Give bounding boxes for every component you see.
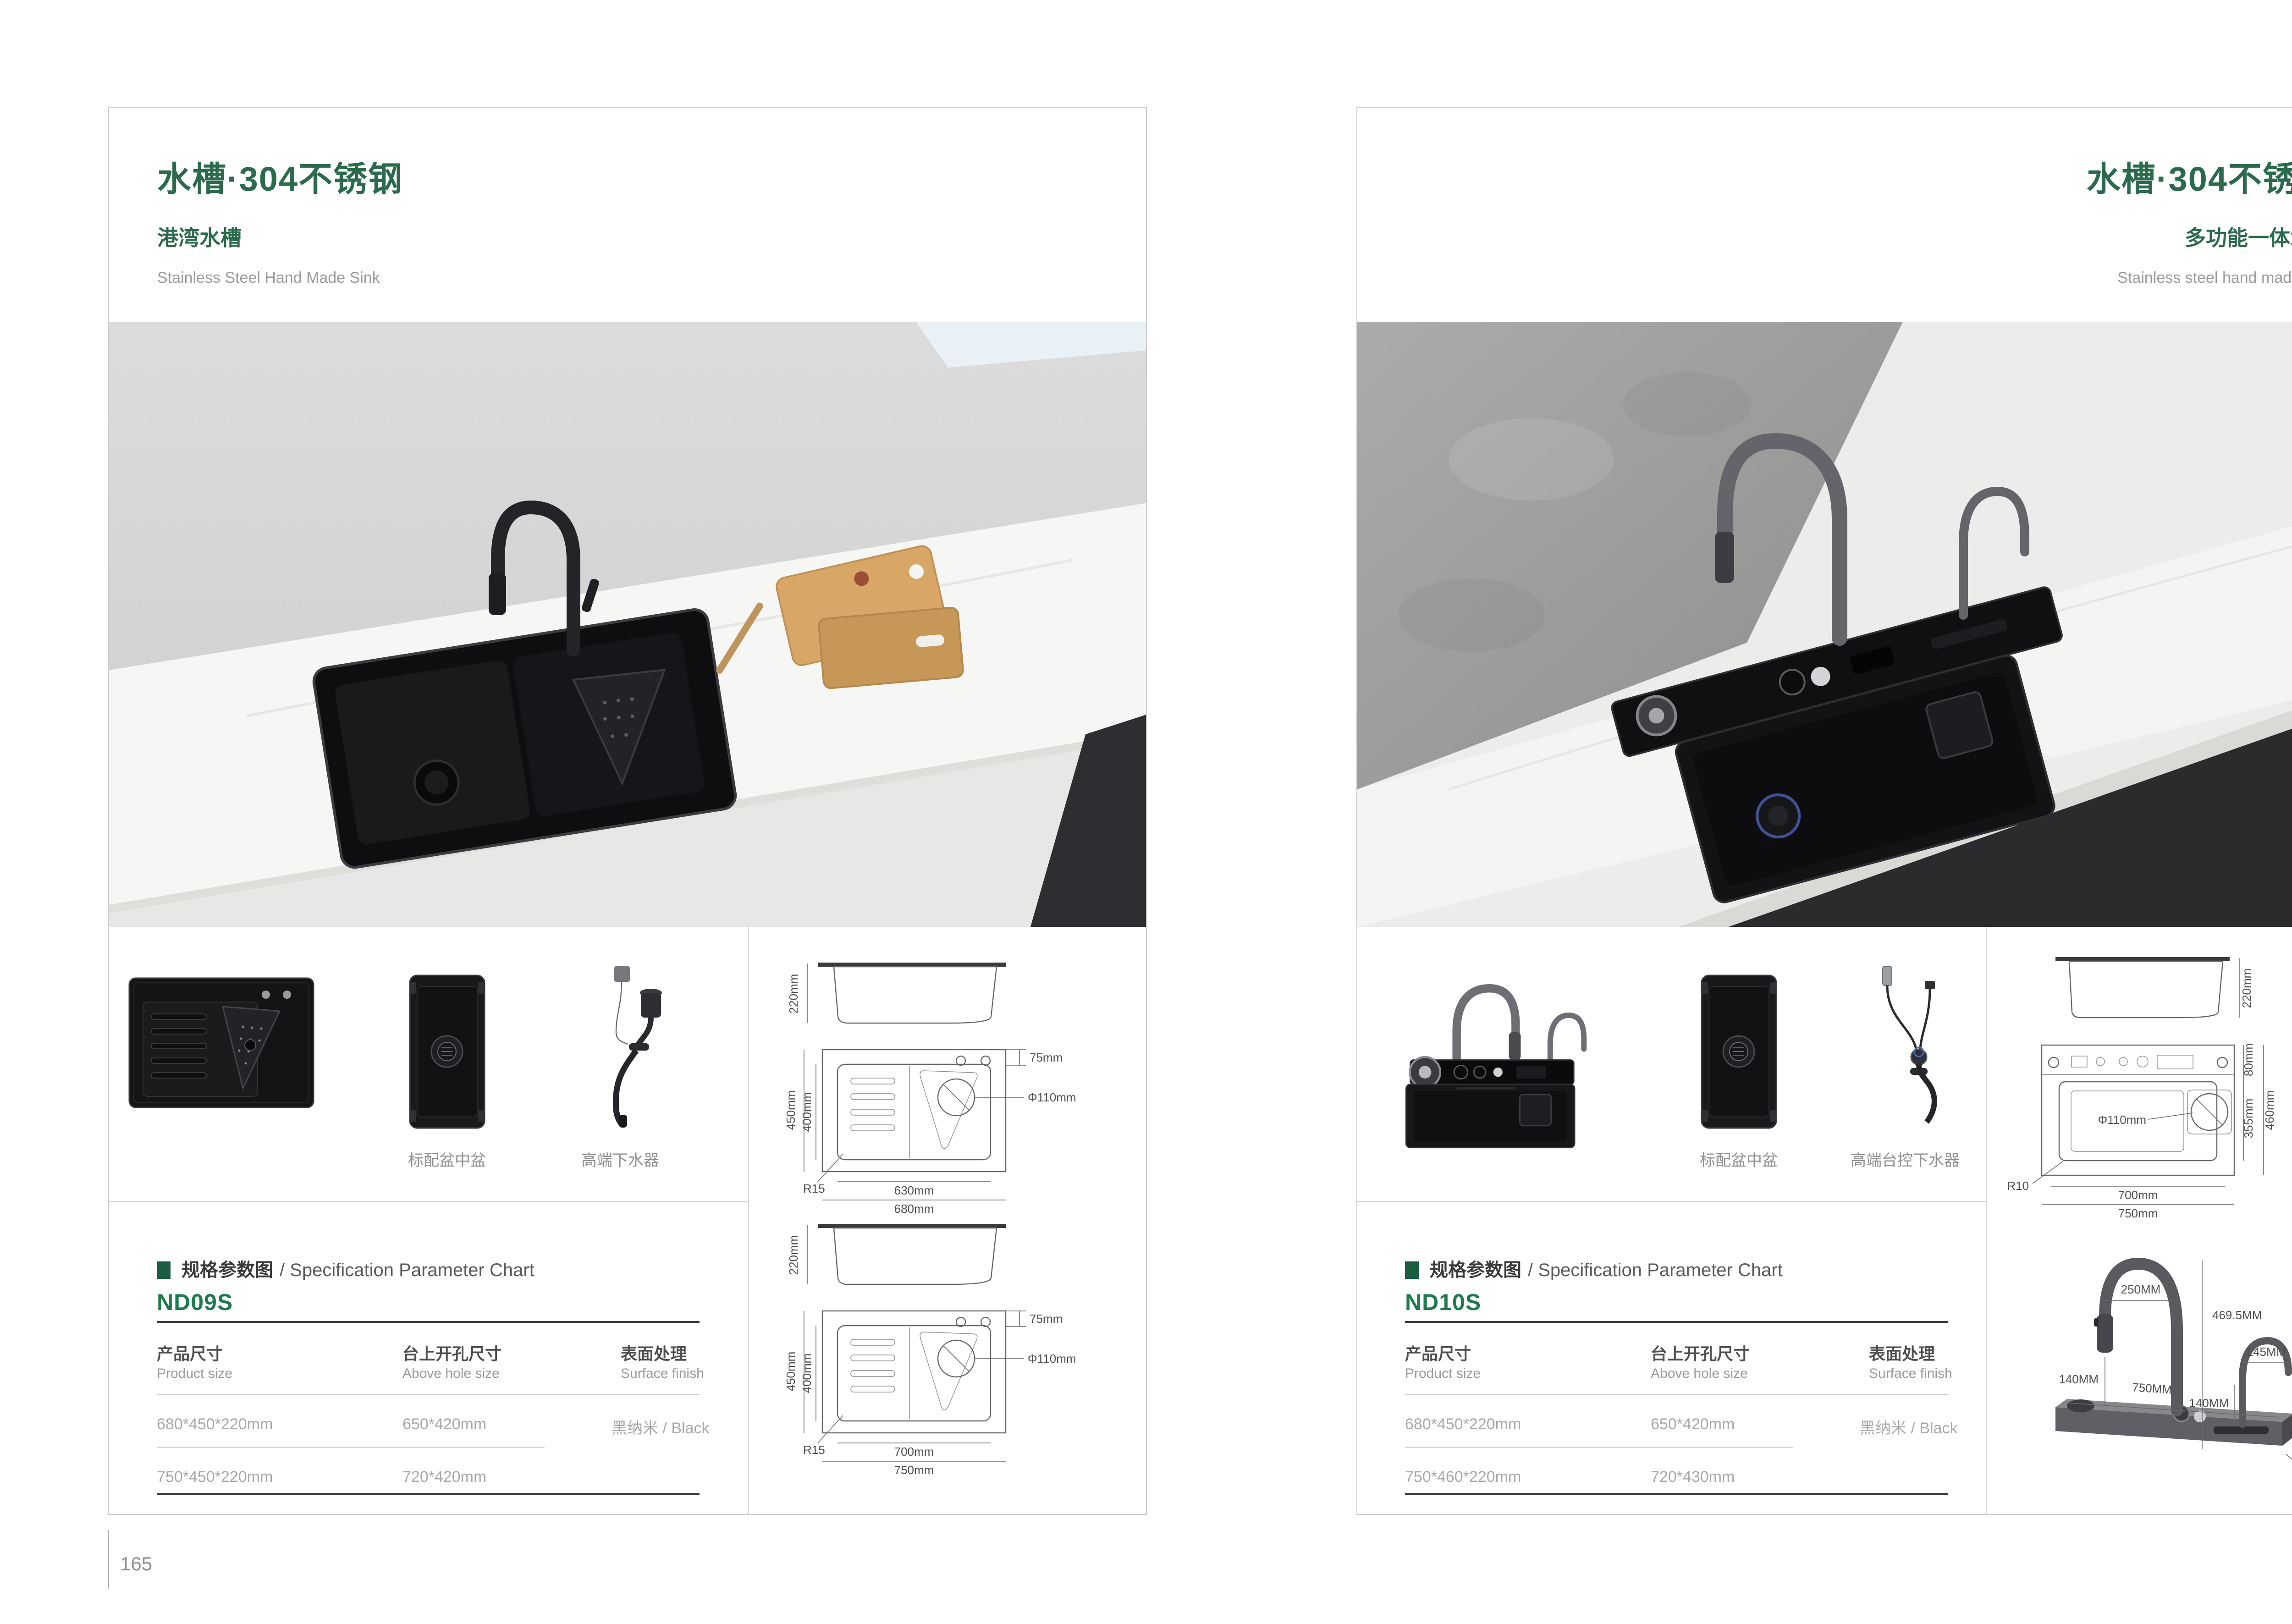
page-subtitle-en: Stainless Steel Hand Made Sink [157, 269, 380, 287]
col-header-en: Above hole size [1651, 1366, 1748, 1382]
page-subtitle: 港湾水槽 [157, 221, 242, 252]
right-dimension-drawings: 220mm Φ110mm 80 [1987, 927, 2292, 1516]
dim-label: R15 [803, 1443, 825, 1457]
right-product-photo [1357, 322, 2292, 927]
sink-thumbnail [127, 976, 315, 1109]
left-drawings-column: 220mm 450mm 400mm [749, 927, 1146, 1514]
dim-label: 75mm [1030, 1051, 1063, 1064]
page-title: 水槽·304不锈钢 [157, 152, 403, 201]
dim-label: 700mm [2118, 1188, 2158, 1202]
spec-title-en: / Specification Parameter Chart [280, 1260, 534, 1280]
dim-label: 80MM [2290, 1466, 2292, 1496]
spec-title-cn: 规格参数图 [182, 1260, 273, 1280]
dim-label: 140MM [2059, 1372, 2099, 1386]
model-number: ND09S [157, 1289, 233, 1316]
drain-kit-thumbnail [572, 963, 668, 1129]
dim-label: Φ110mm [1028, 1352, 1076, 1365]
right-spec-section: 规格参数图/ Specification Parameter Chart ND1… [1357, 1201, 1986, 1514]
drain-label: 高端台控下水器 [1851, 1148, 1960, 1170]
right-drawings-column: 220mm Φ110mm 80 [1987, 927, 2292, 1514]
dim-label: 750MM [2132, 1380, 2172, 1397]
right-page-card: 水槽·304不锈钢 多功能一体水槽 Stainless steel hand m… [1356, 107, 2292, 1515]
col-header-cn: 台上开孔尺寸 [402, 1341, 501, 1365]
spec-value: 650*420mm [402, 1415, 486, 1433]
left-page-card: 水槽·304不锈钢 港湾水槽 Stainless Steel Hand Made… [108, 107, 1147, 1515]
rule [1405, 1321, 1948, 1323]
dim-label: R10 [2007, 1179, 2029, 1193]
page-title: 水槽·304不锈钢 [2087, 152, 2292, 201]
rule [157, 1394, 700, 1395]
spec-title: 规格参数图/ Specification Parameter Chart [1405, 1255, 1783, 1282]
spec-value: 650*420mm [1651, 1415, 1735, 1433]
dim-label: 750mm [2118, 1206, 2158, 1220]
dim-label: 450mm [784, 1090, 798, 1130]
section-bullet-icon [157, 1261, 171, 1279]
spec-value: 750*450*220mm [157, 1468, 273, 1486]
col-header-en: Product size [1405, 1366, 1481, 1382]
rule [1405, 1447, 1793, 1448]
spec-value: 720*420mm [402, 1468, 486, 1486]
col-header-en: Surface finish [1869, 1366, 1952, 1382]
left-dimension-drawings: 220mm 450mm 400mm [749, 927, 1149, 1516]
rule [1405, 1394, 1948, 1395]
dim-label: 630mm [894, 1184, 934, 1197]
col-header-en: Above hole size [402, 1366, 500, 1382]
rule [157, 1321, 700, 1323]
dim-label: 80mm [2242, 1043, 2255, 1076]
dim-label: 400mm [800, 1092, 814, 1132]
spec-value: 黑纳米 / Black [1860, 1415, 1957, 1438]
col-header-en: Product size [157, 1366, 232, 1382]
right-bottom-section: 标配盆中盆 高端台控下水器 规格参数图/ Specification Param… [1357, 927, 2292, 1514]
dim-label: Φ110mm [2098, 1113, 2146, 1127]
dim-label: 355mm [2242, 1099, 2255, 1139]
left-photo-art [109, 322, 1146, 927]
spec-value: 黑纳米 / Black [612, 1415, 709, 1438]
dim-label: 680mm [894, 1202, 934, 1216]
dim-label: 220mm [787, 1235, 800, 1275]
rule [1405, 1493, 1948, 1495]
spec-value: 680*450*220mm [157, 1415, 273, 1433]
page-subtitle-en: Stainless steel hand made sink [2117, 269, 2292, 287]
dim-label: 220mm [787, 974, 800, 1014]
right-photo-art [1357, 322, 2292, 927]
page-number-divider [108, 1530, 109, 1589]
col-header-cn: 表面处理 [621, 1341, 687, 1365]
dim-label: 145MM [2247, 1345, 2286, 1359]
col-header-cn: 表面处理 [1869, 1341, 1935, 1365]
basin-thumbnail [1699, 973, 1779, 1131]
dim-label: 450mm [784, 1352, 798, 1392]
right-header: 水槽·304不锈钢 多功能一体水槽 Stainless steel hand m… [1357, 108, 2292, 322]
section-bullet-icon [1405, 1261, 1419, 1279]
model-number: ND10S [1405, 1289, 1481, 1316]
left-bottom-section: 标配盆中盆 高端下水器 规格参数图/ Specification Paramet… [109, 927, 1146, 1514]
right-thumbnails: 标配盆中盆 高端台控下水器 [1357, 927, 1986, 1201]
spec-title: 规格参数图/ Specification Parameter Chart [157, 1255, 534, 1282]
spec-title-en: / Specification Parameter Chart [1528, 1260, 1783, 1280]
drain-label: 高端下水器 [581, 1148, 659, 1170]
basin-label: 标配盆中盆 [1700, 1148, 1778, 1170]
dim-label: 469.5MM [2212, 1308, 2262, 1322]
dim-label: Φ110mm [1028, 1090, 1076, 1104]
dim-label: 750mm [894, 1463, 934, 1477]
dim-label: 250MM [2121, 1283, 2161, 1296]
spec-title-cn: 规格参数图 [1430, 1260, 1521, 1280]
dim-label: 220mm [2240, 969, 2253, 1008]
dim-label: 140MM [2189, 1396, 2229, 1410]
col-header-cn: 产品尺寸 [157, 1341, 223, 1365]
sink-thumbnail [1385, 968, 1598, 1151]
page-number-left: 165 [120, 1553, 152, 1575]
left-product-photo [109, 322, 1146, 927]
dim-label: 400mm [800, 1354, 814, 1393]
dim-label: R15 [803, 1182, 825, 1195]
left-thumbnails: 标配盆中盆 高端下水器 [109, 927, 748, 1201]
page-subtitle: 多功能一体水槽 [2185, 221, 2292, 252]
col-header-cn: 台上开孔尺寸 [1651, 1341, 1750, 1365]
dim-label: 75mm [1030, 1312, 1063, 1326]
spec-value: 680*450*220mm [1405, 1415, 1521, 1433]
basin-thumbnail [407, 973, 487, 1131]
dim-label: 460mm [2263, 1090, 2276, 1130]
drain-kit-thumbnail [1857, 963, 1953, 1129]
spec-value: 720*430mm [1651, 1468, 1735, 1486]
col-header-en: Surface finish [621, 1366, 704, 1382]
spec-value: 750*460*220mm [1405, 1468, 1521, 1486]
left-header: 水槽·304不锈钢 港湾水槽 Stainless Steel Hand Made… [109, 108, 1146, 322]
dim-label: 700mm [894, 1445, 934, 1459]
left-spec-section: 规格参数图/ Specification Parameter Chart ND0… [109, 1201, 748, 1514]
col-header-cn: 产品尺寸 [1405, 1341, 1471, 1365]
catalog-spread: 水槽·304不锈钢 港湾水槽 Stainless Steel Hand Made… [0, 0, 2292, 1624]
basin-label: 标配盆中盆 [408, 1148, 486, 1170]
rule [157, 1493, 700, 1495]
rule [157, 1447, 545, 1448]
